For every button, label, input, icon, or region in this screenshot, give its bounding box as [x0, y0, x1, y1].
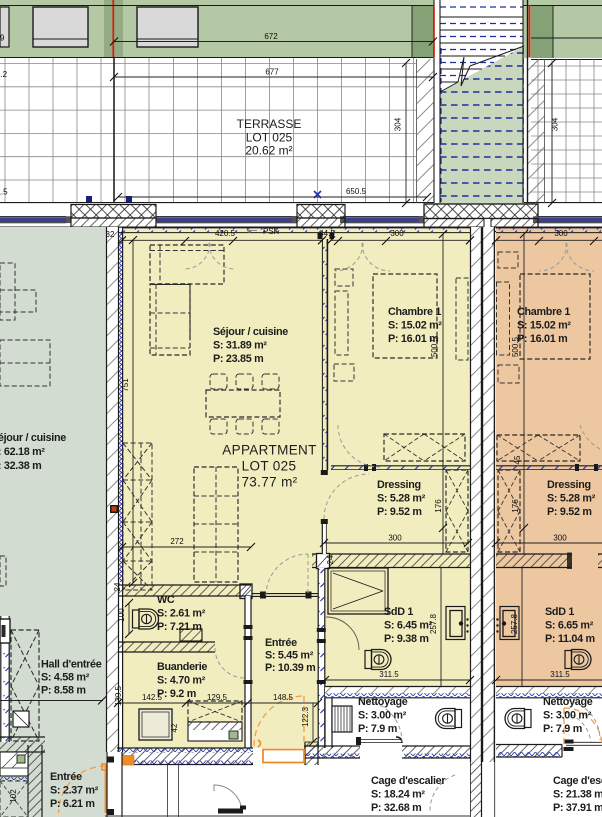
svg-text:P: 9.52 m: P: 9.52 m [547, 506, 592, 518]
svg-text:311.5: 311.5 [379, 670, 399, 679]
svg-text:650.5: 650.5 [346, 187, 367, 196]
svg-text:P: 32.38 m: P: 32.38 m [0, 460, 41, 472]
svg-text:S: 62.18 m²: S: 62.18 m² [0, 446, 45, 458]
svg-text:45: 45 [513, 455, 522, 464]
svg-text:Nettoyage: Nettoyage [543, 696, 593, 708]
svg-text:S: 2.61 m²: S: 2.61 m² [157, 608, 206, 620]
svg-text:S: 6.65 m²: S: 6.65 m² [545, 620, 594, 632]
svg-text:S: 2.37 m²: S: 2.37 m² [50, 785, 99, 797]
svg-text:751: 751 [121, 378, 130, 392]
svg-text:44.5: 44.5 [319, 229, 335, 238]
svg-text:S: 3.00 m²: S: 3.00 m² [543, 710, 592, 722]
svg-text:P: 23.85 m: P: 23.85 m [213, 353, 263, 365]
svg-text:672: 672 [264, 32, 278, 41]
svg-text:20.62 m²: 20.62 m² [245, 144, 292, 158]
svg-text:P: 9.2 m: P: 9.2 m [157, 688, 196, 700]
svg-text:P: 16.01 m: P: 16.01 m [388, 333, 438, 345]
svg-text:42: 42 [170, 723, 179, 732]
svg-text:311.5: 311.5 [550, 670, 570, 679]
svg-text:122.3: 122.3 [301, 706, 310, 727]
svg-text:32: 32 [106, 230, 115, 239]
svg-text:P: 9.52 m: P: 9.52 m [377, 506, 422, 518]
svg-text:24: 24 [113, 582, 122, 591]
svg-text:176: 176 [511, 499, 520, 513]
svg-text:S: 4.70 m²: S: 4.70 m² [157, 675, 206, 687]
svg-text:P: 11.04 m: P: 11.04 m [545, 633, 595, 645]
svg-text:P: 7.9 m: P: 7.9 m [543, 723, 582, 735]
svg-text:Chambre 1: Chambre 1 [388, 306, 441, 318]
svg-text:1.2: 1.2 [0, 70, 8, 79]
svg-text:Cage d'escalier: Cage d'escalier [553, 775, 602, 787]
svg-text:9: 9 [0, 34, 5, 43]
svg-text:176: 176 [434, 499, 443, 513]
svg-text:P: 6.21 m: P: 6.21 m [50, 798, 95, 810]
svg-text:300: 300 [554, 229, 568, 238]
svg-text:304: 304 [551, 117, 560, 131]
svg-text:272: 272 [170, 537, 184, 546]
svg-text:100: 100 [117, 608, 126, 622]
svg-text:S: 6.45 m²: S: 6.45 m² [384, 620, 433, 632]
svg-text:S: 15.02 m²: S: 15.02 m² [517, 320, 571, 332]
svg-text:S: 4.58 m²: S: 4.58 m² [41, 672, 90, 684]
svg-text:PSK: PSK [263, 227, 280, 236]
svg-text:Nettoyage: Nettoyage [358, 696, 408, 708]
svg-text:APPARTMENT: APPARTMENT [222, 443, 317, 458]
svg-text:S: 5.28 m²: S: 5.28 m² [547, 493, 596, 505]
svg-text:LOT 025: LOT 025 [242, 459, 297, 474]
svg-text:420.5: 420.5 [215, 229, 236, 238]
svg-text:TERRASSE: TERRASSE [237, 117, 302, 131]
svg-text:P: 16.01 m: P: 16.01 m [517, 333, 567, 345]
svg-text:129.5: 129.5 [207, 693, 228, 702]
svg-text:P: 32.68 m: P: 32.68 m [371, 802, 421, 814]
svg-text:31.5: 31.5 [0, 188, 8, 197]
svg-text:SdD 1: SdD 1 [384, 606, 413, 618]
svg-text:SdD 1: SdD 1 [545, 606, 574, 618]
svg-text:73.77 m²: 73.77 m² [241, 475, 297, 490]
svg-text:Dressing: Dressing [377, 479, 421, 491]
svg-text:Chambre 1: Chambre 1 [517, 306, 570, 318]
svg-text:WC: WC [157, 594, 175, 606]
svg-text:Buanderie: Buanderie [157, 661, 207, 673]
svg-text:677: 677 [265, 68, 279, 77]
svg-text:P: 10.39 m: P: 10.39 m [265, 662, 315, 674]
svg-text:257.8: 257.8 [510, 613, 519, 634]
svg-text:Cage d'escalier: Cage d'escalier [371, 775, 446, 787]
svg-text:Entrée: Entrée [265, 637, 297, 649]
svg-text:S: 5.45 m²: S: 5.45 m² [265, 650, 314, 662]
svg-text:24: 24 [326, 555, 335, 564]
svg-text:S: 3.00 m²: S: 3.00 m² [358, 710, 407, 722]
svg-text:S: 21.38 m²: S: 21.38 m² [553, 789, 602, 801]
svg-text:P: 7.9 m: P: 7.9 m [358, 723, 397, 735]
svg-text:P: 37.91 m: P: 37.91 m [553, 802, 602, 814]
svg-text:148.5: 148.5 [273, 693, 294, 702]
svg-text:Séjour / cuisine: Séjour / cuisine [213, 326, 288, 338]
svg-text:300: 300 [388, 534, 402, 543]
svg-text:304: 304 [394, 117, 403, 131]
svg-text:Hall d'entrée: Hall d'entrée [41, 659, 102, 671]
svg-text:S: 31.89 m²: S: 31.89 m² [213, 340, 267, 352]
svg-text:Séjour / cuisine: Séjour / cuisine [0, 432, 66, 444]
svg-text:S: 15.02 m²: S: 15.02 m² [388, 320, 442, 332]
svg-text:LOT 025: LOT 025 [246, 131, 293, 145]
svg-text:300: 300 [553, 534, 567, 543]
svg-text:Entrée: Entrée [50, 771, 82, 783]
svg-text:S: 5.28 m²: S: 5.28 m² [377, 493, 426, 505]
svg-text:S: 18.24 m²: S: 18.24 m² [371, 789, 425, 801]
svg-text:Dressing: Dressing [547, 479, 591, 491]
svg-text:P: 7.21 m: P: 7.21 m [157, 621, 202, 633]
svg-text:P: 8.58 m: P: 8.58 m [41, 685, 86, 697]
svg-text:P: 9.38 m: P: 9.38 m [384, 633, 429, 645]
svg-text:300: 300 [390, 229, 404, 238]
svg-text:102: 102 [9, 789, 18, 803]
svg-text:139.5: 139.5 [114, 685, 123, 706]
